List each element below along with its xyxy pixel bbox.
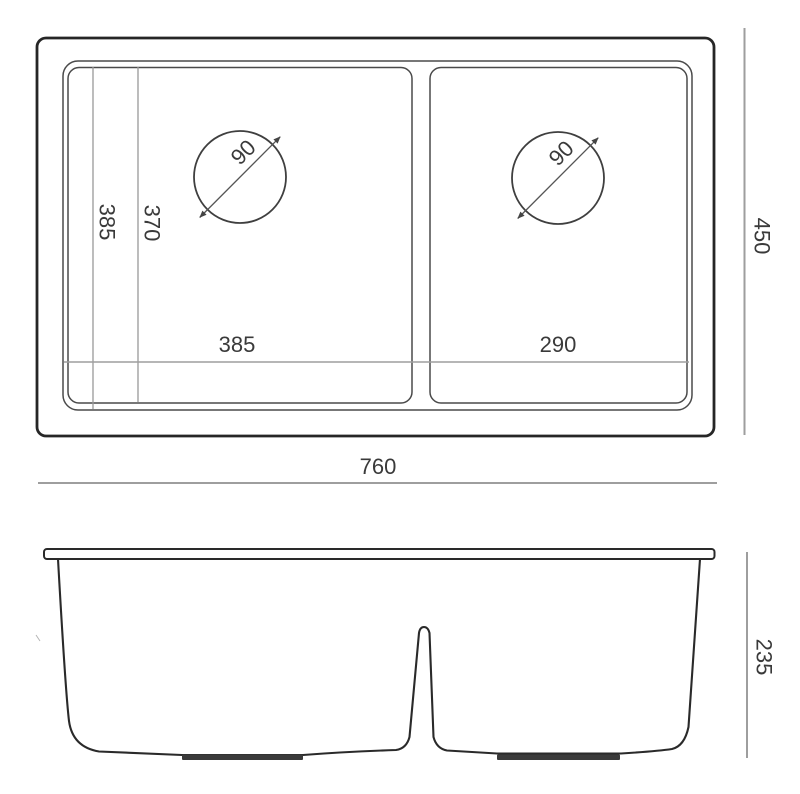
dim-label-90-left: 90 — [226, 135, 261, 170]
left-foot-pad — [182, 755, 303, 761]
dim-label-760-overall-width: 760 — [360, 454, 397, 479]
stray-mark — [36, 635, 40, 641]
drawing-svg: 385 370 90 90 385 290 760 450 235 — [0, 0, 800, 794]
right-foot-pad — [497, 755, 620, 761]
dim-label-370-vertical: 370 — [139, 205, 164, 242]
front-body-profile — [58, 559, 700, 755]
top-view: 385 370 90 90 385 290 760 450 — [37, 28, 774, 483]
dim-label-290-right-bowl: 290 — [540, 332, 577, 357]
dim-label-385-vertical: 385 — [94, 204, 119, 241]
dim-label-385-left-bowl: 385 — [219, 332, 256, 357]
front-view: 235 — [36, 549, 776, 760]
dim-label-235-bowl-height: 235 — [751, 639, 776, 676]
dim-label-450-overall-depth: 450 — [749, 218, 774, 255]
front-rim-flange — [44, 549, 715, 559]
sink-technical-drawing: 385 370 90 90 385 290 760 450 235 — [0, 0, 800, 794]
dim-label-90-right: 90 — [544, 136, 579, 171]
